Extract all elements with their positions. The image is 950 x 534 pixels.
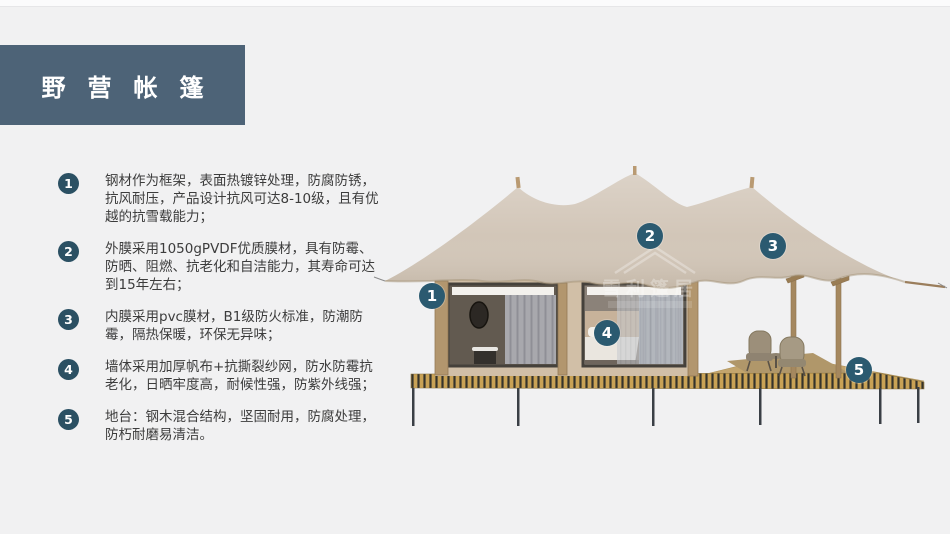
top-border	[0, 0, 950, 7]
page-title-block: 野营帐篷	[0, 45, 245, 125]
feature-number-badge: 5	[58, 409, 79, 430]
callout-4: 4	[594, 320, 620, 346]
feature-number-badge: 4	[58, 359, 79, 380]
slide: 野营帐篷 1 钢材作为框架，表面热镀锌处理，防腐防锈，抗风耐压，产品设计抗风可达…	[0, 0, 950, 534]
vanity-counter	[472, 347, 498, 351]
feature-text: 钢材作为框架，表面热镀锌处理，防腐防锈，抗风耐压，产品设计抗风可达8-10级，且…	[105, 172, 381, 226]
feature-item: 5 地台：钢木混合结构，坚固耐用，防腐处理，防朽耐磨易清洁。	[58, 408, 388, 444]
feature-number-badge: 3	[58, 309, 79, 330]
feature-item: 1 钢材作为框架，表面热镀锌处理，防腐防锈，抗风耐压，产品设计抗风可达8-10级…	[58, 172, 388, 226]
callout-5: 5	[846, 357, 872, 383]
page-title: 野营帐篷	[42, 68, 226, 103]
feature-list: 1 钢材作为框架，表面热镀锌处理，防腐防锈，抗风耐压，产品设计抗风可达8-10级…	[58, 172, 388, 444]
callout-1: 1	[419, 283, 445, 309]
tent-canopy	[374, 166, 947, 288]
feature-text: 外膜采用1050gPVDF优质膜材，具有防霉、防晒、阻燃、抗老化和自洁能力，其寿…	[105, 240, 381, 294]
tent-render: 雪利篷居	[372, 165, 950, 435]
callout-2: 2	[637, 223, 663, 249]
vanity-cabinet	[474, 351, 496, 364]
feature-text: 墙体采用加厚帆布+抗撕裂纱网，防水防霉抗老化，日晒牢度高，耐候性强，防紫外线强；	[105, 358, 381, 394]
tent-illustration: 雪利篷居	[372, 165, 950, 435]
feature-text: 内膜采用pvc膜材，B1级防火标准，防潮防霉，隔热保暖，环保无异味；	[105, 308, 381, 344]
feature-text: 地台：钢木混合结构，坚固耐用，防腐处理，防朽耐磨易清洁。	[105, 408, 381, 444]
deck-legs	[412, 387, 920, 426]
feature-item: 2 外膜采用1050gPVDF优质膜材，具有防霉、防晒、阻燃、抗老化和自洁能力，…	[58, 240, 388, 294]
feature-item: 3 内膜采用pvc膜材，B1级防火标准，防潮防霉，隔热保暖，环保无异味；	[58, 308, 388, 344]
feature-number-badge: 1	[58, 173, 79, 194]
callout-3: 3	[760, 233, 786, 259]
watermark-text: 雪利篷居	[602, 277, 698, 300]
window-left	[448, 284, 558, 366]
feature-item: 4 墙体采用加厚帆布+抗撕裂纱网，防水防霉抗老化，日晒牢度高，耐候性强，防紫外线…	[58, 358, 388, 394]
feature-number-badge: 2	[58, 241, 79, 262]
mirror	[470, 302, 488, 328]
